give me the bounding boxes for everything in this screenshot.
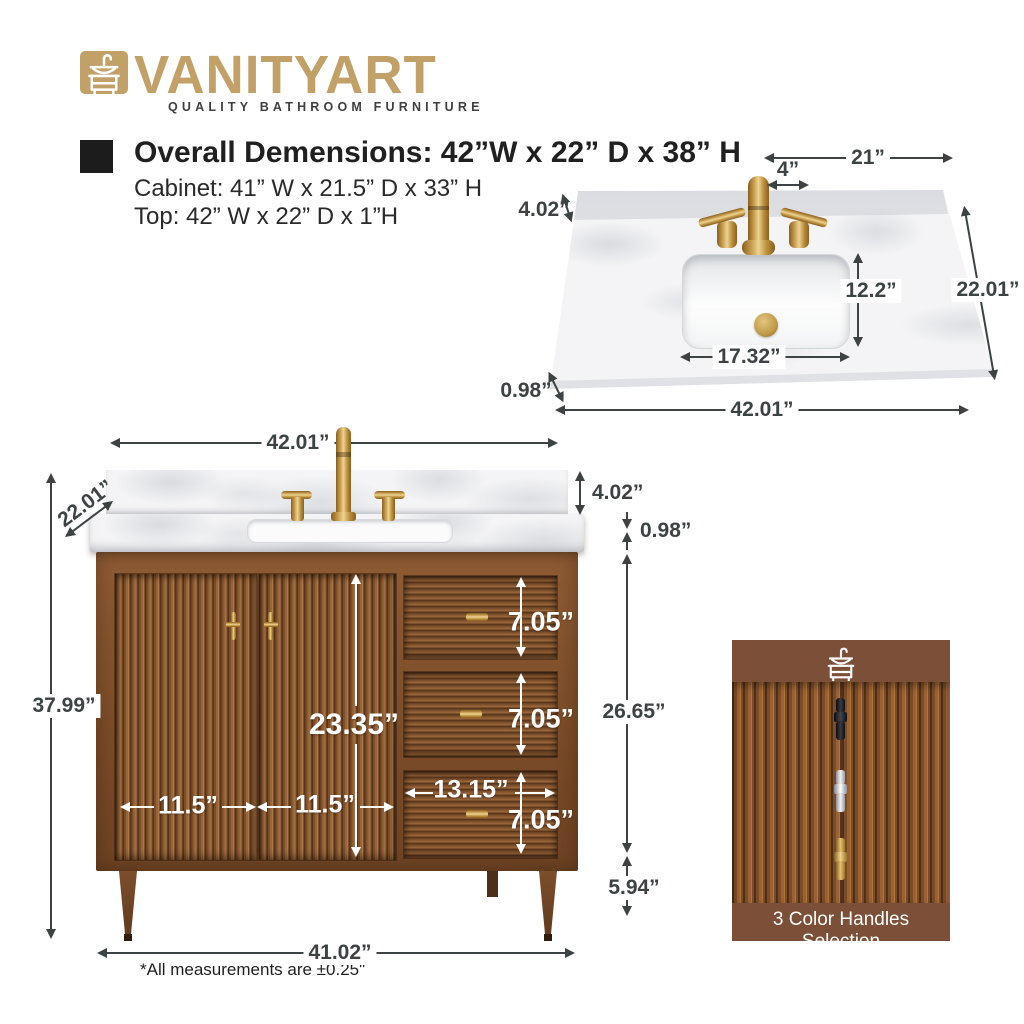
right-door-handle-bar (264, 622, 278, 627)
dim-label-overall-height: 37.99” (27, 694, 100, 718)
gold-handle-rod (836, 861, 845, 880)
cabinet-dimensions-line: Cabinet: 41” W x 21.5” D x 33” H (134, 175, 482, 203)
sink-rim-front-view (247, 519, 453, 543)
front-right-foot (544, 934, 552, 941)
dim-label-drawer3: 7.05” (508, 805, 574, 836)
dim-line-door-height-bottom (355, 744, 357, 855)
drawer-2-knob (460, 710, 482, 718)
dim-line-drawer-width-right (515, 792, 553, 794)
dim-label-base-width: 41.02” (303, 941, 376, 965)
chrome-handle (836, 770, 845, 785)
dim-label-thickness-tv: 0.98” (500, 379, 551, 403)
dim-label-leg-height: 5.94” (603, 876, 664, 900)
faucet-right-handle-base (789, 221, 809, 248)
front-right-leg (539, 871, 557, 939)
faucet-spout-ring-front (336, 452, 351, 457)
faucet-right-stem-front (382, 497, 395, 521)
dim-label-sink-depth: 12.2” (840, 279, 901, 303)
dim-label-drawer-width: 13.15” (433, 776, 508, 805)
black-handle (836, 698, 845, 713)
sink-basin-top-view (682, 254, 850, 349)
dim-line-left-door-a (122, 806, 154, 808)
dim-label-cabinet-height: 26.65” (597, 700, 670, 724)
dim-arrow-thickness-top (626, 512, 628, 527)
sink-drain (754, 313, 778, 337)
dim-label-backsplash-front: 4.02” (592, 481, 643, 505)
dim-label-depth-tv: 22.01” (951, 278, 1024, 302)
dim-label-backsplash-tv: 4.02” (518, 198, 569, 222)
gold-handle (836, 838, 845, 853)
faucet-left-handle-base (717, 221, 737, 248)
front-left-foot (124, 934, 132, 941)
faucet-spout-top-view (748, 176, 769, 248)
dim-label-21: 21” (846, 146, 890, 170)
dim-label-width-tv: 42.01” (725, 398, 798, 422)
dim-label-left-door: 11.5” (158, 792, 218, 821)
dim-label-4: 4” (777, 158, 799, 182)
brand-logo-icon (80, 51, 128, 94)
dim-label-width-front: 42.01” (261, 431, 334, 455)
faucet-spout-ring (748, 206, 769, 210)
dim-line-drawer-width-left (407, 792, 433, 794)
panel-vanity-icon (819, 645, 863, 681)
chrome-handle-rod (836, 793, 845, 812)
dim-line-4 (769, 184, 807, 186)
dim-line-backsplash-front (579, 473, 581, 513)
faucet-spout-front (336, 427, 351, 521)
brand-tagline: QUALITY BATHROOM FURNITURE (168, 100, 484, 114)
dim-line-left-door-b (222, 806, 254, 808)
faucet-left-stem-front (291, 497, 304, 521)
dim-line-door-height-top (355, 576, 357, 706)
dim-line-right-door-b (360, 806, 392, 808)
bullet-square (80, 140, 113, 173)
drawer-1-knob (466, 613, 488, 621)
dim-label-right-door: 11.5” (295, 791, 355, 820)
dim-label-sink-width: 17.32” (712, 345, 785, 369)
dim-label-drawer1: 7.05” (508, 607, 574, 638)
vanity-sink-icon (80, 51, 128, 94)
top-dimensions-line: Top: 42” W x 22” D x 1”H (134, 203, 398, 231)
dim-label-thickness-front: 0.98” (640, 519, 691, 543)
black-handle-rod (836, 721, 845, 740)
handles-panel: 3 Color Handles Selection (732, 640, 950, 941)
overall-dimensions-heading: Overall Demensions: 42”W x 22” D x 38” H (134, 136, 741, 170)
dim-label-door-height: 23.35” (309, 708, 399, 742)
left-door-handle-bar (226, 622, 240, 627)
faucet-base-front (331, 512, 356, 521)
spec-sheet: VANITYART QUALITY BATHROOM FURNITURE Ove… (0, 0, 1024, 1024)
brand-wordmark: VANITYART (134, 44, 437, 106)
handles-panel-title: 3 Color Handles Selection (732, 909, 950, 953)
dim-arrow-thickness-bottom (626, 534, 628, 550)
drawer-3-knob (466, 810, 488, 818)
dim-label-drawer2: 7.05” (508, 704, 574, 735)
dim-line-right-door-a (259, 806, 291, 808)
rear-leg (487, 871, 498, 897)
front-left-leg (119, 871, 137, 939)
faucet-spout-base (742, 240, 775, 255)
